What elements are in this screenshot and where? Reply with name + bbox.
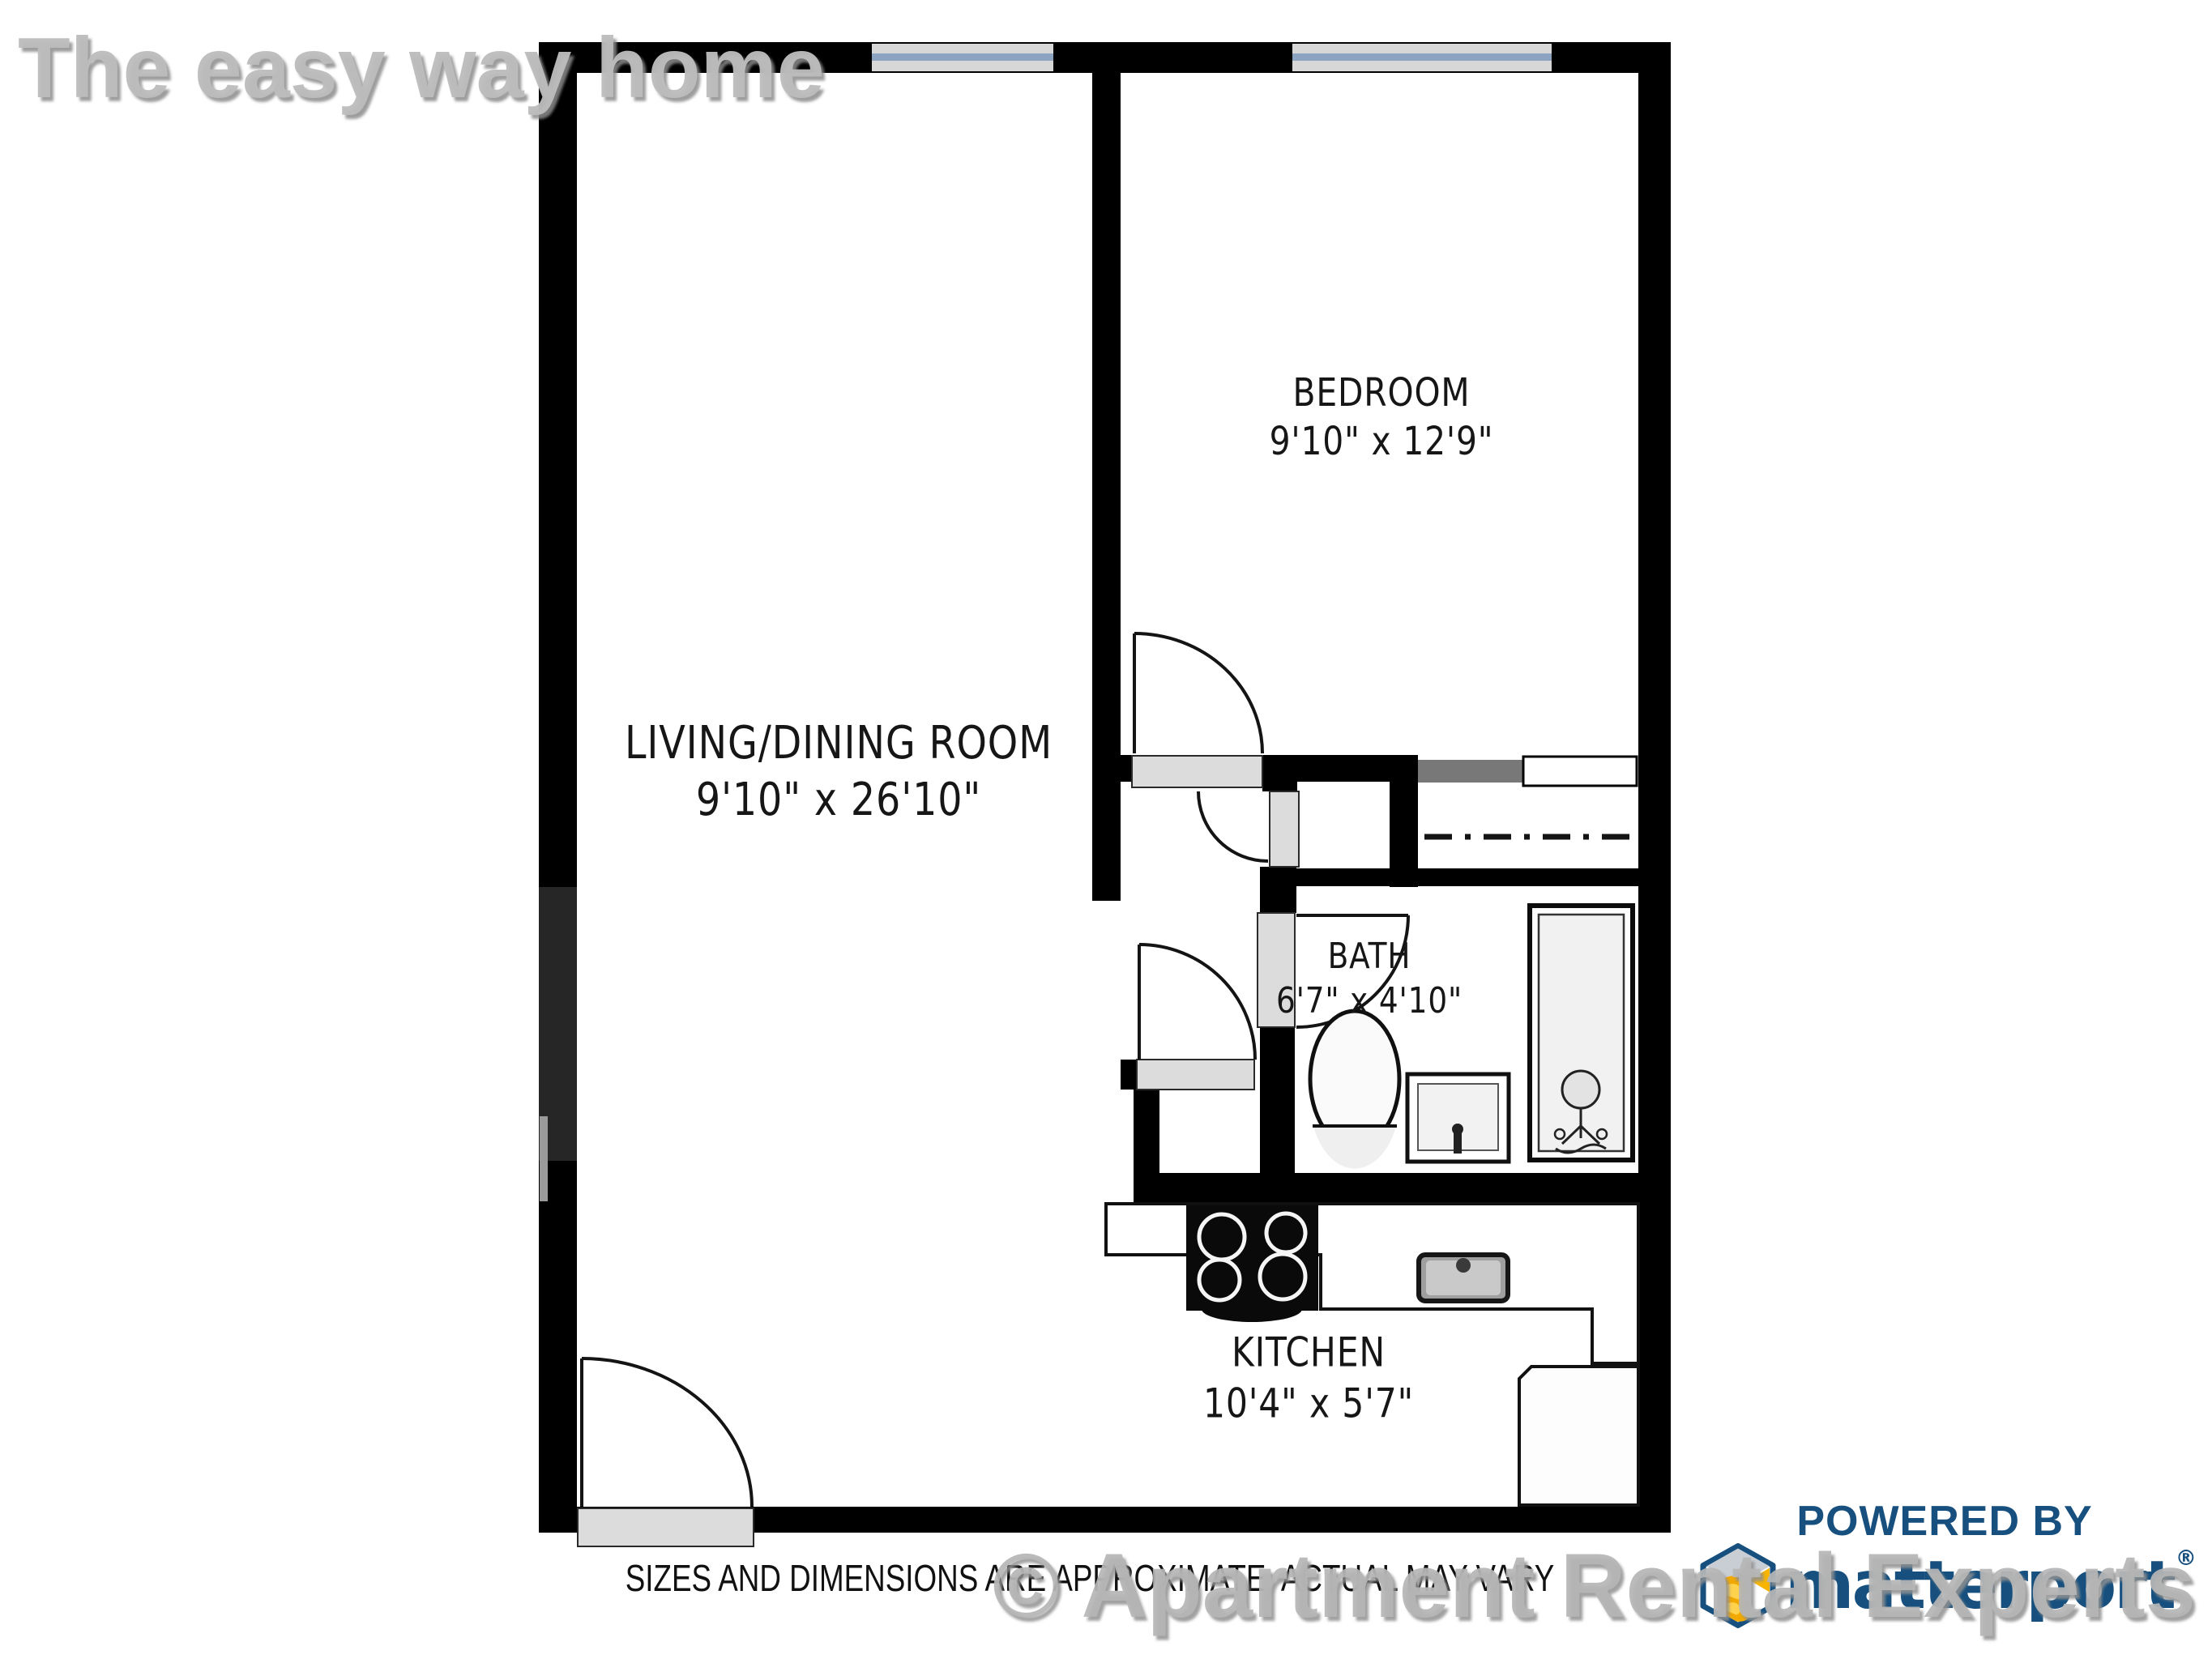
floor-plan-page: BEDROOM 9'10" x 12'9" LIVING/DINING ROOM… (0, 0, 2212, 1659)
room-dims: 6'7" x 4'10" (1276, 979, 1463, 1023)
room-label-living-dining: LIVING/DINING ROOM 9'10" x 26'10" (625, 715, 1053, 829)
room-label-bath: BATH 6'7" x 4'10" (1276, 934, 1463, 1023)
entry-door (582, 1358, 752, 1507)
room-name: LIVING/DINING ROOM (625, 715, 1053, 772)
room-label-kitchen: KITCHEN 10'4" x 5'7" (1203, 1328, 1414, 1429)
bath-sink-fixture (1407, 1074, 1509, 1162)
room-dims: 9'10" x 12'9" (1270, 417, 1494, 466)
room-name: BEDROOM (1270, 369, 1494, 417)
room-name: KITCHEN (1203, 1328, 1414, 1379)
watermark-bottom: © Apartment Rental Experts (993, 1533, 2196, 1638)
room-dims: 9'10" x 26'10" (625, 772, 1053, 829)
room-label-bedroom: BEDROOM 9'10" x 12'9" (1270, 369, 1494, 466)
floor-plan-svg (0, 0, 2212, 1659)
hallway-door (1139, 945, 1255, 1060)
door-sills (578, 756, 1299, 1546)
kitchen-sink-fixture (1419, 1255, 1508, 1301)
room-name: BATH (1276, 934, 1463, 979)
watermark-top: The easy way home (18, 19, 825, 117)
hall-closet-door (1198, 791, 1268, 861)
toilet-fixture (1310, 1011, 1399, 1169)
fridge-fixture (1519, 1367, 1638, 1505)
closet-sliding-doors (1418, 757, 1637, 786)
stove-fixture (1186, 1205, 1318, 1322)
bedroom-door (1134, 633, 1262, 753)
room-dims: 10'4" x 5'7" (1203, 1378, 1414, 1429)
bathtub-fixture (1530, 906, 1633, 1160)
